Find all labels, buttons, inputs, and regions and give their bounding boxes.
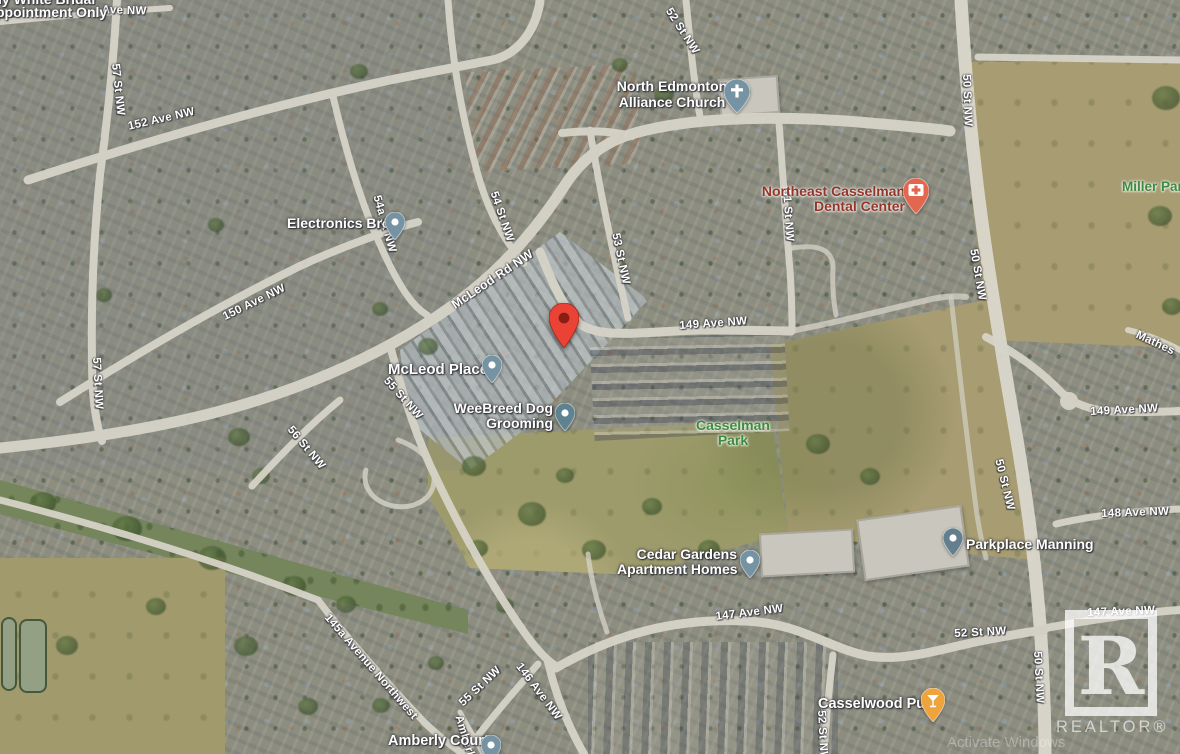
poi-label-alliance-church[interactable]: North Edmonton Alliance Church xyxy=(612,78,732,110)
mcleod-place-pin[interactable] xyxy=(482,355,502,388)
red-location-marker[interactable] xyxy=(549,303,579,353)
casselwood-pub-pin[interactable] xyxy=(921,688,945,727)
street-label: Ave NW xyxy=(102,4,147,18)
poi-label-electronics-bro[interactable]: Electronics Bro xyxy=(287,216,390,231)
poi-label-cedar-gardens[interactable]: Cedar Gardens Apartment Homes xyxy=(617,547,737,577)
cedar-gardens-pin[interactable] xyxy=(740,550,760,583)
parkplace-manning-pin[interactable] xyxy=(943,528,963,561)
amberly-court-pin[interactable] xyxy=(481,735,501,754)
poi-label-weebreed[interactable]: WeeBreed Dog Grooming xyxy=(453,401,553,431)
church-pin[interactable] xyxy=(724,79,750,118)
street-label: 148 Ave NW xyxy=(1101,506,1169,520)
poi-label-mcleod-place[interactable]: McLeod Place xyxy=(388,362,488,377)
poi-label-amberly-court[interactable]: Amberly Court xyxy=(388,734,489,749)
street-label: 50 St NW xyxy=(960,74,974,127)
poi-label-casselwood-pub[interactable]: Casselwood Pub xyxy=(818,697,934,712)
satellite-map-viewport[interactable]: Ave NW 152 Ave NW 57 St NW 57 St NW 150 … xyxy=(0,0,1180,754)
poi-label-bridal-line2[interactable]: ppointment Only xyxy=(0,5,107,20)
poi-label-dental-center[interactable]: Northeast Casselman Dental Center xyxy=(757,184,905,214)
street-label: 147 Ave NW xyxy=(1087,605,1155,619)
dental-center-pin[interactable] xyxy=(903,178,929,219)
electronics-bro-pin[interactable] xyxy=(385,212,405,245)
poi-label-miller-park[interactable]: Miller Park xyxy=(1122,179,1180,194)
poi-label-casselman-park[interactable]: Casselman Park xyxy=(682,418,784,447)
poi-label-parkplace-manning[interactable]: Parkplace Manning xyxy=(966,537,1094,552)
weebreed-grooming-pin[interactable] xyxy=(555,403,575,436)
